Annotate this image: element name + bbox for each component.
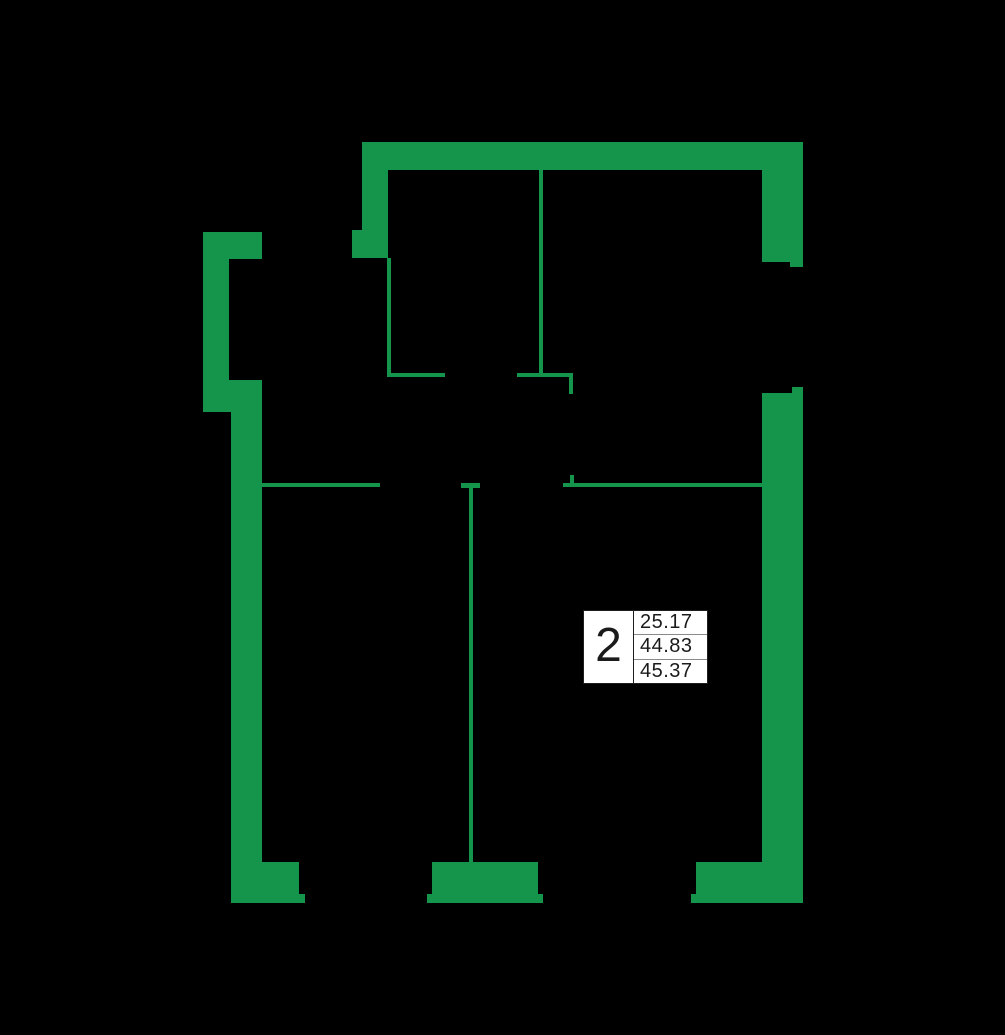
wall-bottom-middle-foot xyxy=(427,894,543,903)
floorplan-canvas: 2 25.17 44.83 45.37 xyxy=(0,0,1005,1035)
floorplan-walls xyxy=(0,0,1005,1035)
wall-right-lower-window-step xyxy=(792,387,803,393)
area-value-1: 25.17 xyxy=(634,611,707,634)
wall-partition-door-jamb xyxy=(570,475,574,484)
wall-bottom-left-foot xyxy=(262,894,305,903)
unit-area-list: 25.17 44.83 45.37 xyxy=(634,611,707,683)
wall-partition-bottomleft-horizontal xyxy=(262,483,380,487)
area-value-2: 44.83 xyxy=(634,634,707,658)
wall-top-outer xyxy=(362,142,803,170)
wall-top-left-pier xyxy=(352,230,388,258)
wall-bottom-right-block xyxy=(696,862,803,903)
wall-partition-center-vertical xyxy=(539,169,543,377)
wall-bottom-right-foot xyxy=(691,894,696,903)
area-value-3: 45.37 xyxy=(634,659,707,683)
wall-balcony-outer xyxy=(203,259,229,380)
unit-number: 2 xyxy=(584,611,634,683)
wall-bottom-left-block xyxy=(262,862,299,894)
wall-bottom-middle-block xyxy=(432,862,538,895)
wall-right-upper-window-step xyxy=(790,262,803,267)
wall-right-lower-outer xyxy=(762,393,803,903)
wall-balcony-bottom-pier xyxy=(203,380,262,412)
wall-partition-door-stub xyxy=(569,377,573,394)
wall-partition-left-horizontal xyxy=(387,373,445,377)
wall-partition-center-horizontal xyxy=(517,373,573,377)
wall-right-upper-outer xyxy=(762,142,803,262)
wall-partition-left-vertical xyxy=(387,258,391,377)
wall-balcony-top-pier xyxy=(203,232,262,259)
wall-partition-mid-vertical xyxy=(469,487,473,862)
wall-partition-right-horizontal xyxy=(563,483,762,487)
unit-info-box[interactable]: 2 25.17 44.83 45.37 xyxy=(583,610,708,684)
wall-left-outer xyxy=(231,412,262,903)
